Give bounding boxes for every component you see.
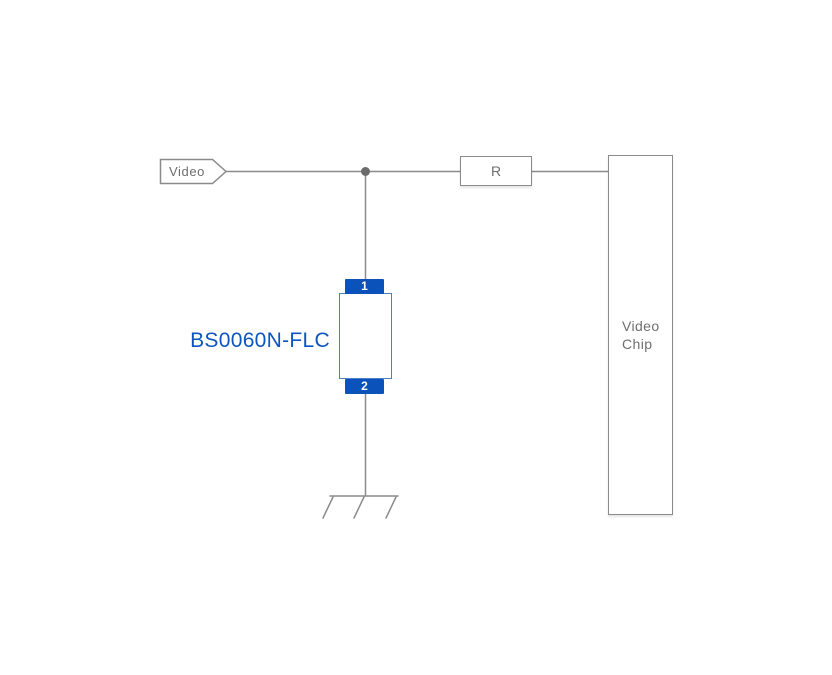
part-number-label: BS0060N-FLC — [170, 329, 330, 355]
tvs-pin-1: 1 — [345, 279, 384, 294]
tvs-body — [339, 293, 392, 379]
resistor-label: R — [491, 163, 501, 179]
net-tag-label: Video — [160, 159, 214, 184]
tvs-pin-2-label: 2 — [361, 379, 368, 394]
ground-hatch-middle — [354, 497, 364, 518]
junction-dot — [361, 167, 370, 176]
video-chip-block: Video Chip — [608, 155, 673, 515]
schematic-canvas: Video R Video Chip 1 2 BS0060N-FLC — [0, 0, 832, 675]
chip-label-line1: Video — [622, 317, 672, 335]
ground-symbol — [323, 496, 398, 518]
ground-hatch-right — [386, 497, 396, 518]
schematic-drawing — [0, 0, 832, 675]
ground-hatch-left — [323, 497, 333, 518]
chip-label-line2: Chip — [622, 335, 672, 353]
tvs-pin-2: 2 — [345, 379, 384, 394]
resistor: R — [460, 156, 532, 186]
tvs-pin-1-label: 1 — [361, 279, 368, 294]
